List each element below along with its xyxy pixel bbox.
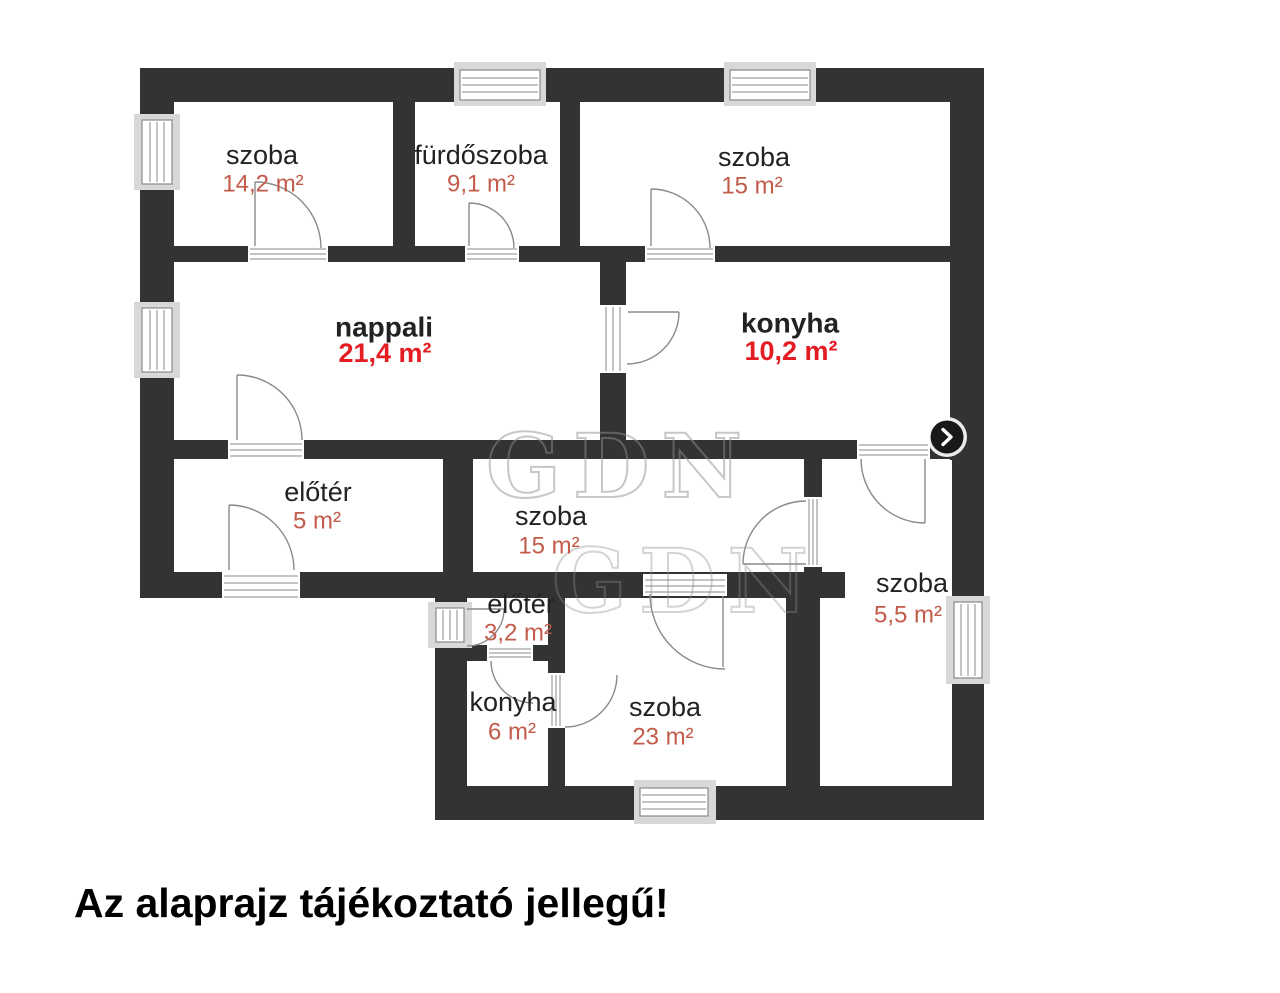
room-label: szoba — [718, 142, 791, 172]
room-label: konyha — [469, 687, 557, 717]
wall-segment — [443, 459, 473, 572]
room-area: 3,2 m² — [484, 620, 552, 647]
room-area: 9,1 m² — [447, 171, 515, 198]
window — [134, 302, 180, 378]
room-area: 10,2 m² — [744, 336, 837, 366]
wall-segment — [140, 68, 958, 102]
window — [946, 596, 990, 684]
room-label: szoba — [629, 692, 702, 722]
door-threshold — [465, 244, 519, 264]
room-area: 21,4 m² — [338, 338, 431, 368]
room-area: 5,5 m² — [874, 602, 942, 629]
room-label: konyha — [741, 308, 839, 339]
wall-segment — [560, 102, 580, 246]
floorplan-image: GDN GDN szoba 14,2 m² fürdőszoba 9,1 m² … — [0, 0, 1280, 993]
room-label: előtér — [487, 589, 555, 619]
door — [229, 505, 294, 570]
next-image-button[interactable] — [927, 417, 967, 457]
room-label: szoba — [515, 501, 588, 531]
room-label: szoba — [876, 568, 949, 598]
wall-segment — [393, 102, 415, 246]
door-threshold — [857, 440, 930, 459]
door — [469, 203, 514, 248]
window — [634, 780, 716, 824]
room-label: szoba — [226, 140, 299, 170]
door-threshold — [487, 645, 533, 661]
room-area: 23 m² — [632, 724, 693, 751]
door — [861, 459, 925, 523]
door-threshold — [228, 438, 304, 461]
wall-segment — [950, 68, 984, 460]
wall-segment — [804, 459, 822, 499]
door — [237, 375, 302, 440]
next-button-circle — [931, 421, 964, 454]
watermark-text: GDN — [552, 529, 820, 633]
room-area: 15 m² — [721, 173, 782, 200]
room-label: előtér — [284, 477, 352, 507]
door — [627, 312, 679, 364]
room-label: fürdőszoba — [414, 140, 549, 170]
room-area: 15 m² — [518, 533, 579, 560]
window — [134, 114, 180, 190]
room-area: 6 m² — [488, 719, 536, 746]
window — [724, 62, 816, 106]
room-area: 14,2 m² — [222, 171, 303, 198]
window — [428, 602, 472, 648]
window — [454, 62, 546, 106]
disclaimer-text: Az alaprajz tájékoztató jellegű! — [74, 880, 669, 926]
door-threshold — [248, 244, 328, 264]
door — [651, 189, 710, 248]
room-area: 5 m² — [293, 508, 341, 535]
door-threshold — [645, 244, 715, 264]
door-threshold — [600, 305, 626, 373]
entrance-steps — [222, 570, 300, 602]
door — [565, 675, 617, 727]
